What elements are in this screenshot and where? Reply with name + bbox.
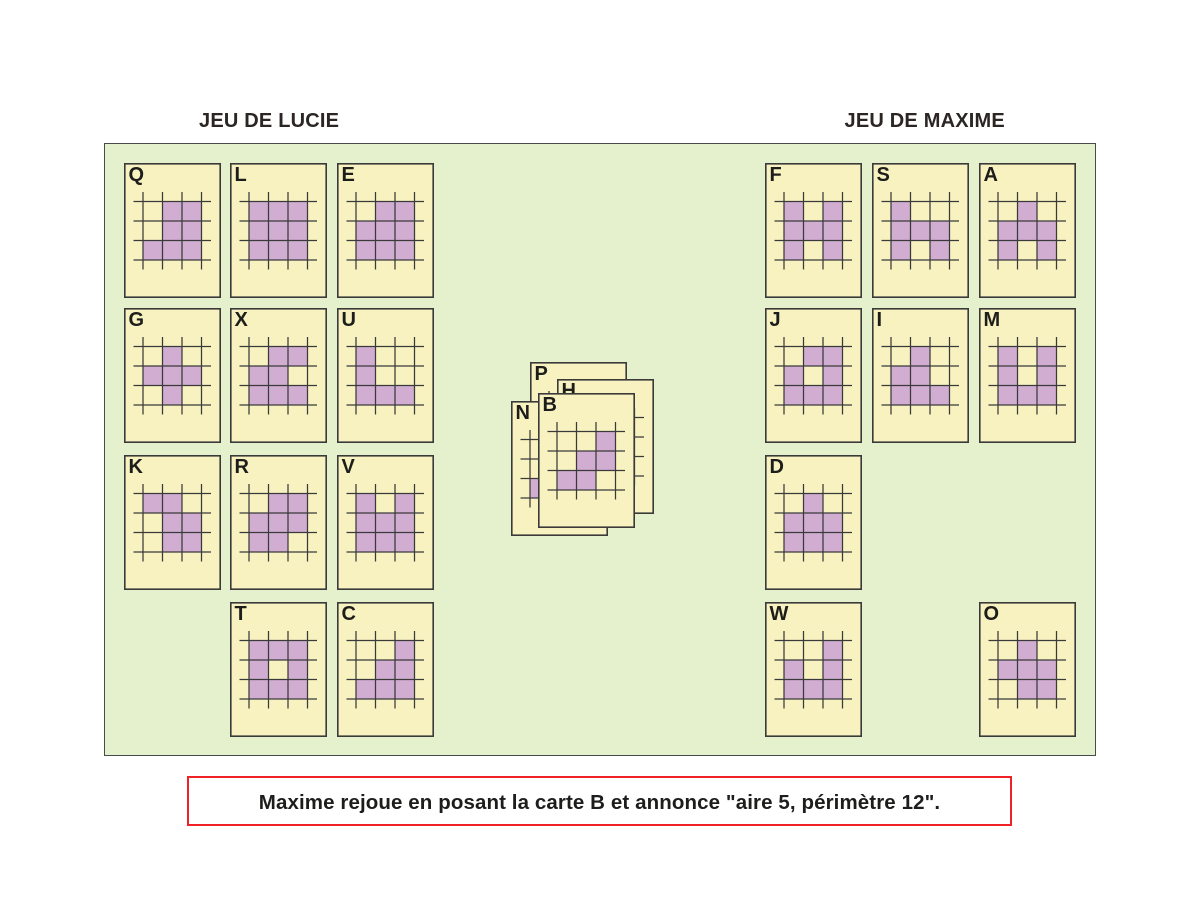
svg-text:K: K [129, 456, 144, 478]
svg-text:C: C [341, 603, 355, 625]
svg-text:P: P [535, 363, 548, 385]
svg-text:J: J [769, 309, 780, 331]
svg-text:U: U [341, 309, 355, 331]
svg-text:I: I [877, 309, 883, 331]
svg-text:S: S [877, 164, 890, 186]
svg-text:Q: Q [129, 164, 145, 186]
svg-text:B: B [543, 394, 557, 416]
svg-text:F: F [769, 164, 781, 186]
svg-text:E: E [341, 164, 354, 186]
svg-text:R: R [235, 456, 250, 478]
svg-text:O: O [984, 603, 1000, 625]
svg-text:M: M [984, 309, 1001, 331]
svg-text:V: V [341, 456, 355, 478]
svg-text:D: D [769, 456, 783, 478]
svg-text:T: T [235, 603, 247, 625]
svg-text:X: X [235, 309, 249, 331]
svg-text:L: L [235, 164, 247, 186]
svg-text:A: A [984, 164, 998, 186]
svg-text:G: G [129, 309, 145, 331]
svg-text:N: N [516, 402, 530, 424]
svg-text:W: W [769, 603, 788, 625]
